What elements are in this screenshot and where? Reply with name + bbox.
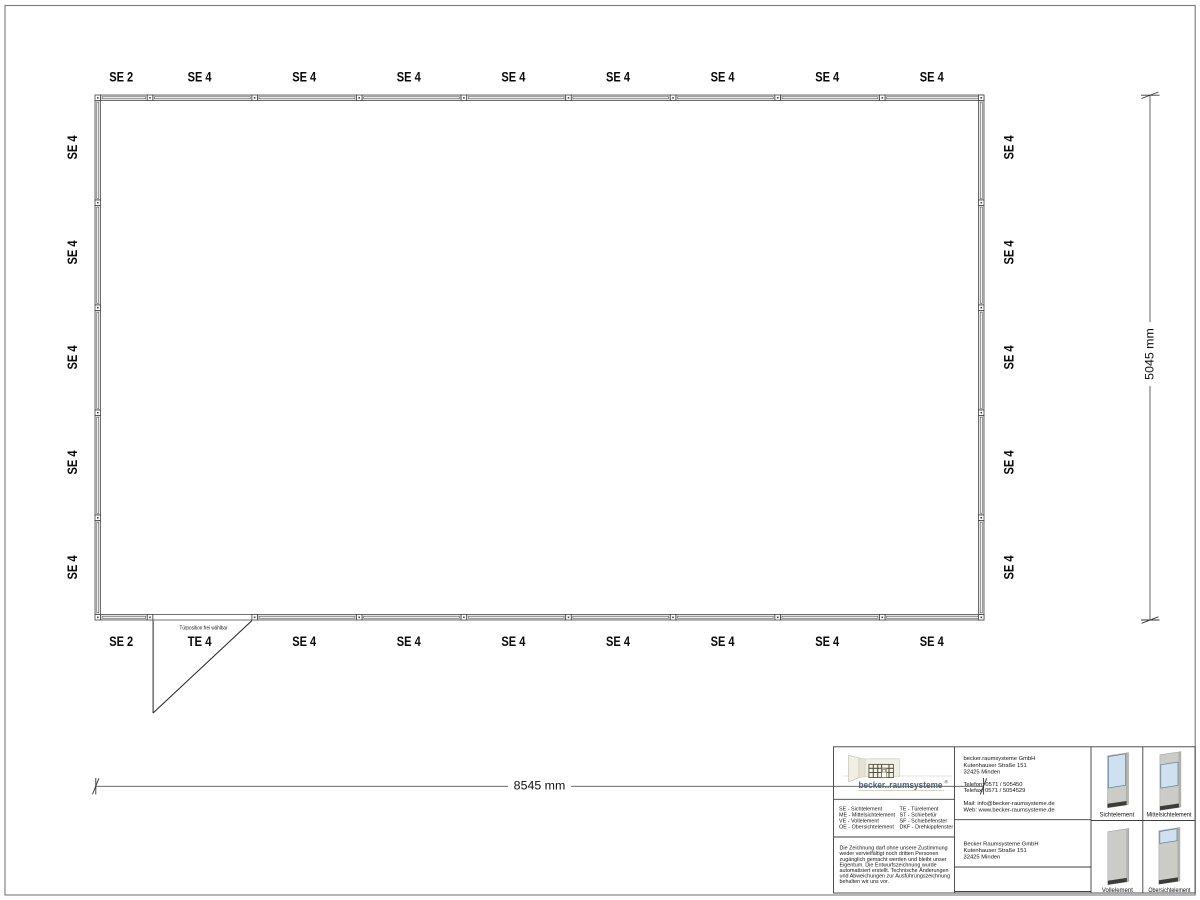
svg-text:SE 4: SE 4 [920,69,944,84]
svg-text:SE 4: SE 4 [711,634,735,649]
svg-text:SE 4: SE 4 [815,634,839,649]
svg-text:SE 4: SE 4 [606,69,630,84]
svg-text:32425 Minden: 32425 Minden [964,854,1001,860]
svg-text:SE 4: SE 4 [65,135,80,159]
svg-text:Telefon: 0571 / 505450: Telefon: 0571 / 505450 [964,782,1023,788]
svg-text:SE 4: SE 4 [501,634,525,649]
svg-text:SE 4: SE 4 [1002,345,1017,369]
svg-text:becker..raumsysteme: becker..raumsysteme [859,779,943,790]
svg-text:SE 4: SE 4 [501,69,525,84]
svg-text:Mail: info@becker-raumsysteme.: Mail: info@becker-raumsysteme.de [964,801,1055,807]
svg-text:SE 4: SE 4 [606,634,630,649]
svg-text:DKF - Drehkippfenster: DKF - Drehkippfenster [900,825,954,831]
svg-text:behalten wir uns vor.: behalten wir uns vor. [840,879,889,885]
svg-text:SE 4: SE 4 [920,634,944,649]
svg-text:SE 4: SE 4 [188,69,212,84]
svg-text:TE 4: TE 4 [188,634,212,649]
svg-text:SE 4: SE 4 [1002,555,1017,579]
svg-text:Vollelement: Vollelement [1102,888,1133,894]
svg-text:Mittelsichtelement: Mittelsichtelement [1147,813,1192,819]
svg-text:8545 mm: 8545 mm [514,779,566,793]
svg-text:SE 4: SE 4 [815,69,839,84]
svg-text:SE 4: SE 4 [65,345,80,369]
svg-text:SF - Schiebefenster: SF - Schiebefenster [900,819,948,825]
svg-text:Kutenhauser Straße 151: Kutenhauser Straße 151 [964,763,1027,769]
svg-text:5045 mm: 5045 mm [1142,328,1156,380]
svg-text:SE 4: SE 4 [397,69,421,84]
svg-text:Becker Raumsysteme GmbH: Becker Raumsysteme GmbH [964,841,1039,847]
svg-text:VE - Vollelement: VE - Vollelement [839,819,879,825]
svg-text:OE - Obersichtelement: OE - Obersichtelement [839,825,894,831]
svg-text:Kutenhauser Straße 151: Kutenhauser Straße 151 [964,848,1027,854]
svg-text:Sichtelement: Sichtelement [1100,813,1135,819]
svg-text:SE 4: SE 4 [711,69,735,84]
svg-text:32425 Minden: 32425 Minden [964,770,1001,776]
svg-text:Web: www.becker-raumsysteme.de: Web: www.becker-raumsysteme.de [964,808,1055,814]
svg-text:SE 4: SE 4 [65,240,80,264]
svg-text:Telefax: 0571 / 5054529: Telefax: 0571 / 5054529 [964,788,1026,794]
svg-text:SE 4: SE 4 [292,69,316,84]
svg-text:SE 4: SE 4 [292,634,316,649]
svg-text:SE 4: SE 4 [1002,450,1017,474]
svg-text:ST - Schiebetür: ST - Schiebetür [900,812,938,818]
svg-text:Türposition frei wählbar: Türposition frei wählbar [180,625,228,631]
svg-text:Obersichtelement: Obersichtelement [1148,888,1190,894]
svg-text:becker.raumsysteme GmbH: becker.raumsysteme GmbH [964,756,1036,762]
svg-text:SE - Sichtelement: SE - Sichtelement [839,806,883,812]
svg-text:SE 2: SE 2 [109,634,133,649]
svg-text:SE 4: SE 4 [65,555,80,579]
svg-text:SE 4: SE 4 [1002,240,1017,264]
svg-text:SE 4: SE 4 [65,450,80,474]
svg-text:SE 4: SE 4 [397,634,421,649]
svg-text:TE - Türelement: TE - Türelement [900,806,939,812]
svg-text:ME - Mittelsichtelement: ME - Mittelsichtelement [839,812,896,818]
svg-text:SE 2: SE 2 [109,69,133,84]
svg-text:SE 4: SE 4 [1002,135,1017,159]
